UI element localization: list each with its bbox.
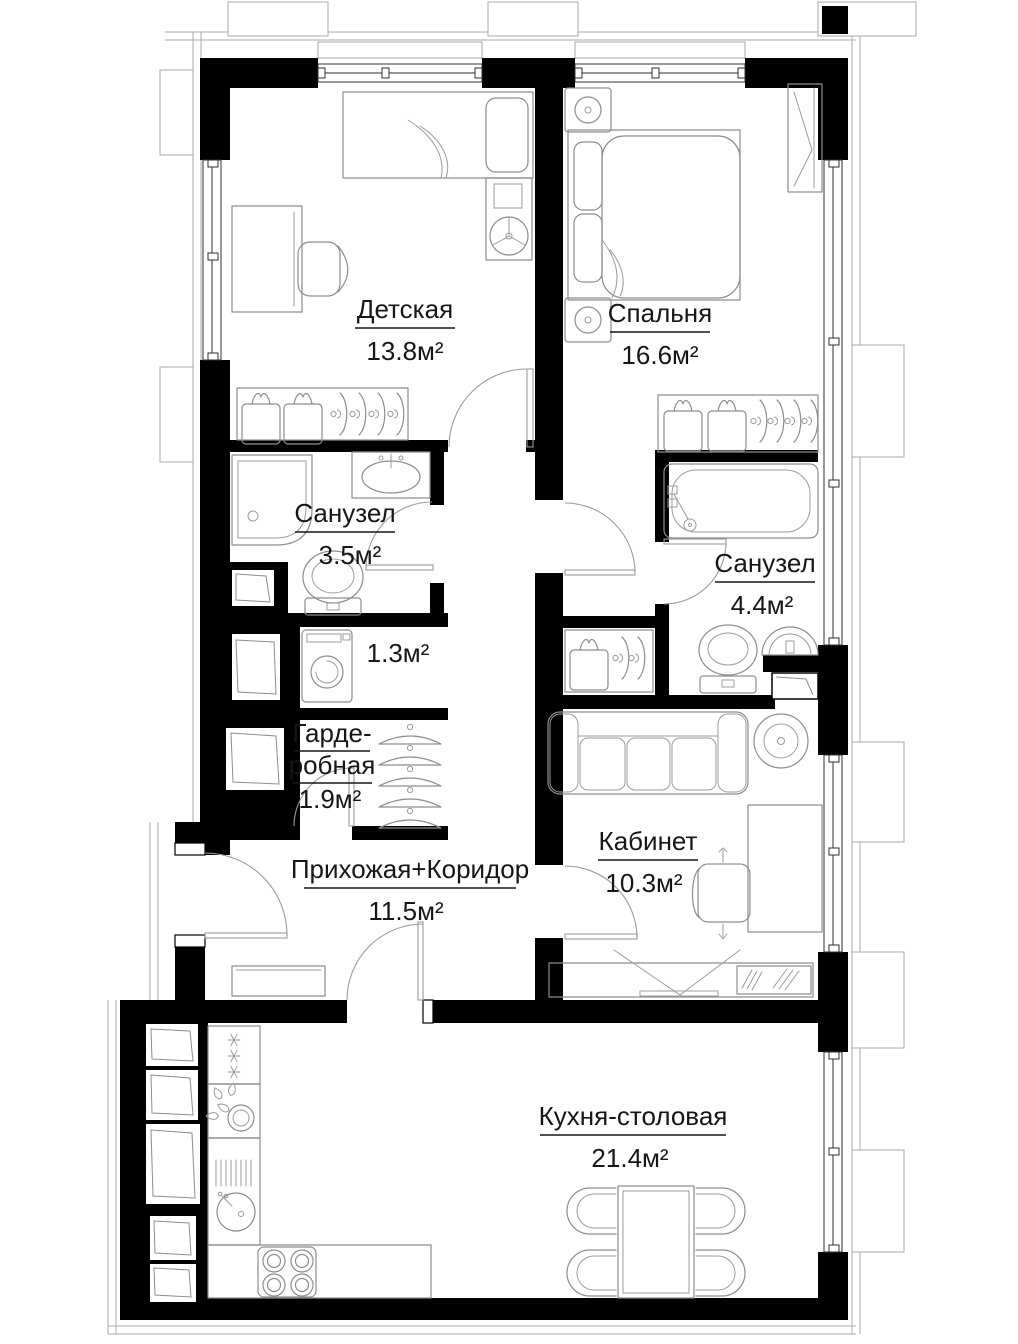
window-icon bbox=[203, 160, 221, 360]
folded-clothes-icon bbox=[284, 393, 322, 444]
door-leaf bbox=[418, 922, 423, 1000]
desk-icon bbox=[748, 805, 822, 932]
single-bed-icon bbox=[343, 92, 533, 178]
floor-plan-canvas: Детская 13.8м² Спальня 16.6м² Санузел 3.… bbox=[0, 0, 1018, 1344]
drop-icon bbox=[216, 1102, 230, 1114]
washing-machine-icon bbox=[302, 630, 352, 702]
dining-chair-icon bbox=[567, 1250, 616, 1296]
burner-icon bbox=[291, 1274, 313, 1296]
room-area: 1.3м² bbox=[367, 638, 430, 668]
room-name: Спальня bbox=[608, 298, 712, 328]
room-area: 11.5м² bbox=[368, 896, 444, 926]
room-area: 21.4м² bbox=[591, 1143, 668, 1173]
room-name: Детская bbox=[357, 294, 453, 324]
room-area: 10.3м² bbox=[605, 868, 682, 898]
hanger-icon bbox=[802, 400, 818, 442]
hanger-icon bbox=[379, 724, 441, 744]
office-chair-icon bbox=[693, 848, 751, 939]
dining-chair-icon bbox=[696, 1188, 745, 1234]
dining-chair-icon bbox=[696, 1250, 745, 1296]
facade-protrusion bbox=[852, 345, 904, 457]
facade-line-right bbox=[852, 32, 860, 1334]
console-icon bbox=[232, 966, 325, 996]
burner-icon bbox=[263, 1250, 285, 1272]
burner-icon bbox=[291, 1250, 313, 1272]
nightstand-icon bbox=[565, 298, 611, 342]
door-swing-arc bbox=[449, 369, 527, 447]
room-name: робная bbox=[289, 750, 376, 780]
washbasin-icon bbox=[762, 627, 818, 655]
facade-protrusion bbox=[852, 1150, 904, 1252]
stove-icon bbox=[208, 1245, 431, 1298]
duct-shaft-icon bbox=[226, 728, 284, 790]
facade-line-bottom bbox=[108, 1326, 856, 1334]
kitchen-counter bbox=[208, 1138, 260, 1245]
room-name: Прихожая+Коридор bbox=[291, 854, 529, 884]
facade-line-left bbox=[193, 32, 201, 828]
kitchen-sink-icon bbox=[206, 1083, 260, 1138]
walk-in-closet-hangers bbox=[379, 724, 441, 828]
sofa-icon bbox=[548, 712, 748, 794]
hanger-icon bbox=[768, 400, 784, 442]
duct-shaft-icon bbox=[232, 634, 280, 700]
fridge-icon bbox=[208, 1026, 260, 1084]
nightstand-icon bbox=[486, 178, 532, 260]
bathtub-icon bbox=[664, 464, 818, 538]
room-area: 3.5м² bbox=[319, 540, 382, 570]
wardrobe-icon bbox=[237, 388, 408, 444]
room-area: 16.6м² bbox=[621, 340, 698, 370]
washbasin-icon bbox=[352, 452, 430, 498]
facade-pier bbox=[822, 6, 848, 34]
folded-clothes-icon bbox=[708, 400, 746, 451]
window-icon bbox=[824, 1052, 842, 1252]
tv-stand-icon bbox=[549, 950, 813, 997]
hanger-icon bbox=[379, 808, 441, 828]
nightstand-icon bbox=[565, 88, 611, 132]
room-name: Санузел bbox=[294, 498, 395, 528]
dining-table-icon bbox=[618, 1186, 694, 1298]
furniture-children-room bbox=[232, 92, 533, 444]
hanger-icon bbox=[331, 393, 347, 435]
window-icon bbox=[318, 64, 482, 82]
window-icon bbox=[824, 755, 842, 952]
door-children-room bbox=[449, 369, 533, 447]
door-swing-arc bbox=[565, 503, 635, 573]
closet-niche bbox=[565, 630, 653, 692]
hanger-icon bbox=[379, 787, 441, 807]
window-icon bbox=[575, 64, 745, 82]
facade-protrusion bbox=[852, 952, 904, 1048]
room-name: Санузел bbox=[714, 548, 815, 578]
door-swing-arc bbox=[347, 924, 423, 1000]
toilet-icon bbox=[699, 625, 757, 693]
hanger-icon bbox=[751, 400, 767, 442]
hanger-icon bbox=[379, 745, 441, 765]
room-area: 4.4м² bbox=[731, 590, 794, 620]
door-kitchen-opening bbox=[347, 922, 433, 1023]
wardrobe-icon bbox=[788, 84, 822, 192]
furniture-bedroom bbox=[565, 84, 822, 452]
room-name: Гарде- bbox=[292, 718, 371, 748]
snowflake-icon bbox=[228, 1051, 240, 1062]
door-bedroom bbox=[565, 503, 635, 575]
facade-protrusion bbox=[160, 367, 193, 462]
dining-chair-icon bbox=[567, 1188, 616, 1234]
duct-shaft-icon bbox=[146, 1070, 198, 1120]
room-label-walk-in-closet: Гарде- робная 1.9м² bbox=[289, 718, 376, 814]
room-label-kitchen-dining: Кухня-столовая 21.4м² bbox=[539, 1101, 728, 1173]
hanger-icon bbox=[629, 637, 645, 679]
chair-icon bbox=[298, 242, 348, 296]
facade-protrusion bbox=[852, 742, 904, 842]
hanger-icon bbox=[785, 400, 801, 442]
room-name: Кухня-столовая bbox=[539, 1101, 728, 1131]
hanger-icon bbox=[379, 766, 441, 786]
room-name: Кабинет bbox=[599, 826, 698, 856]
room-label-laundry-niche: 1.3м² bbox=[367, 638, 430, 668]
room-label-children: Детская 13.8м² bbox=[355, 294, 455, 366]
room-label-bathroom-master: Санузел 4.4м² bbox=[714, 548, 815, 620]
room-label-bathroom-small: Санузел 3.5м² bbox=[294, 498, 395, 570]
folded-clothes-icon bbox=[242, 393, 280, 444]
burner-icon bbox=[263, 1274, 285, 1296]
room-area: 1.9м² bbox=[299, 784, 362, 814]
hanger-icon bbox=[613, 637, 629, 679]
room-label-hallway: Прихожая+Коридор 11.5м² bbox=[291, 854, 529, 926]
floor-plan: Детская 13.8м² Спальня 16.6м² Санузел 3.… bbox=[0, 0, 1018, 1344]
door-leaf bbox=[565, 934, 637, 939]
window-icon bbox=[824, 160, 842, 645]
door-leaf bbox=[527, 369, 533, 447]
wall-structure bbox=[120, 58, 848, 1320]
double-bed-icon bbox=[568, 130, 740, 300]
door-leaf bbox=[664, 539, 726, 544]
hanger-icon bbox=[388, 393, 404, 435]
folded-clothes-icon bbox=[570, 639, 608, 690]
door-leaf bbox=[205, 933, 287, 938]
room-label-bedroom: Спальня 16.6м² bbox=[608, 298, 712, 370]
door-jamb bbox=[175, 935, 205, 947]
hanger-icon bbox=[369, 393, 385, 435]
snowflake-icon bbox=[228, 1067, 240, 1078]
room-area: 13.8м² bbox=[366, 336, 443, 366]
plant-icon bbox=[754, 714, 808, 768]
door-swing-arc bbox=[205, 853, 287, 935]
drop-icon bbox=[212, 1086, 224, 1100]
door-leaf bbox=[565, 570, 635, 575]
pilaster bbox=[228, 2, 328, 36]
window-sill bbox=[318, 42, 482, 58]
door-entrance bbox=[175, 843, 287, 947]
folded-clothes-icon bbox=[664, 400, 702, 451]
snowflake-icon bbox=[228, 1035, 240, 1046]
pilaster bbox=[488, 2, 578, 36]
door-jamb bbox=[175, 843, 205, 855]
door-jamb bbox=[423, 1000, 433, 1023]
facade-protrusion bbox=[160, 70, 193, 155]
room-label-office: Кабинет 10.3м² bbox=[598, 826, 698, 898]
desk-icon bbox=[232, 206, 302, 312]
duct-shafts bbox=[146, 570, 818, 1302]
hanger-icon bbox=[350, 393, 366, 435]
window-sill bbox=[575, 42, 745, 58]
wardrobe-icon bbox=[658, 395, 818, 452]
